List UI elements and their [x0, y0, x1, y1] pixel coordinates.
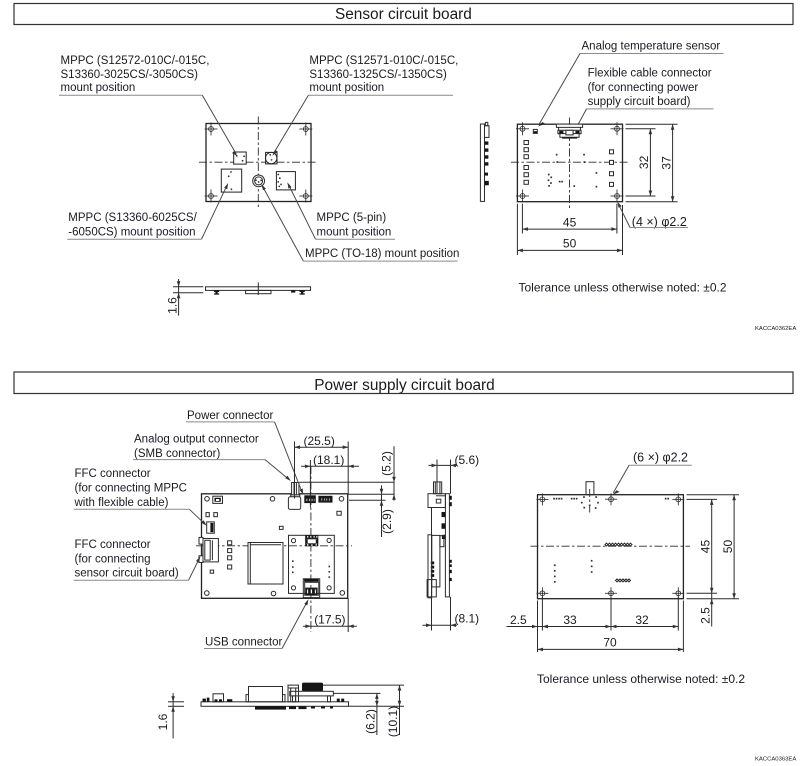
- svg-text:32: 32: [635, 613, 649, 627]
- svg-text:FFC connector: FFC connector: [75, 539, 151, 551]
- svg-text:Flexible cable connector: Flexible cable connector: [588, 68, 712, 80]
- svg-text:Power supply circuit board: Power supply circuit board: [314, 377, 495, 394]
- svg-text:(2.9): (2.9): [380, 509, 394, 534]
- svg-text:MPPC (5-pin): MPPC (5-pin): [317, 212, 387, 224]
- svg-text:-6050CS) mount position: -6050CS) mount position: [68, 226, 195, 238]
- svg-text:(6.2): (6.2): [364, 709, 378, 734]
- svg-text:50: 50: [721, 540, 735, 554]
- svg-text:(SMB connector): (SMB connector): [134, 448, 220, 460]
- svg-text:(4 ×) φ2.2: (4 ×) φ2.2: [632, 215, 687, 229]
- svg-text:S13360-3025CS/-3050CS): S13360-3025CS/-3050CS): [61, 69, 199, 81]
- svg-text:MPPC (S12572-010C/-015C,: MPPC (S12572-010C/-015C,: [61, 55, 210, 67]
- svg-text:Tolerance unless otherwise not: Tolerance unless otherwise noted: ±0.2: [537, 672, 745, 686]
- svg-text:Analog temperature sensor: Analog temperature sensor: [582, 41, 721, 53]
- svg-text:1.6: 1.6: [156, 713, 170, 730]
- svg-text:70: 70: [603, 636, 617, 650]
- svg-text:(8.1): (8.1): [455, 611, 480, 625]
- svg-text:mount position: mount position: [309, 82, 384, 94]
- svg-text:37: 37: [660, 156, 674, 170]
- svg-text:Analog output connector: Analog output connector: [134, 434, 259, 446]
- svg-text:Power connector: Power connector: [187, 410, 273, 422]
- svg-text:2.5: 2.5: [510, 613, 527, 627]
- svg-text:Sensor circuit board: Sensor circuit board: [335, 6, 472, 23]
- svg-text:33: 33: [563, 613, 577, 627]
- svg-text:KACCA0362EA: KACCA0362EA: [755, 326, 796, 332]
- svg-text:1.6: 1.6: [165, 297, 179, 314]
- svg-text:S13360-1325CS/-1350CS): S13360-1325CS/-1350CS): [309, 69, 447, 81]
- svg-text:45: 45: [698, 540, 712, 554]
- svg-text:(6 ×) φ2.2: (6 ×) φ2.2: [633, 451, 688, 465]
- svg-text:(18.1): (18.1): [313, 453, 344, 467]
- svg-text:Tolerance unless otherwise not: Tolerance unless otherwise noted: ±0.2: [519, 281, 727, 295]
- svg-text:mount position: mount position: [61, 82, 136, 94]
- svg-text:(for connecting MPPC: (for connecting MPPC: [75, 483, 188, 495]
- svg-text:MPPC (S13360-6025CS/: MPPC (S13360-6025CS/: [68, 212, 197, 224]
- svg-text:USB connector: USB connector: [205, 637, 283, 649]
- svg-text:(25.5): (25.5): [304, 434, 335, 448]
- svg-text:(for connecting: (for connecting: [75, 553, 151, 565]
- svg-text:KACCA0363EA: KACCA0363EA: [755, 757, 796, 763]
- svg-text:(for connecting power: (for connecting power: [588, 82, 699, 94]
- svg-text:(5.2): (5.2): [379, 451, 393, 476]
- svg-text:MPPC (TO-18) mount position: MPPC (TO-18) mount position: [305, 248, 459, 260]
- svg-text:with flexible cable): with flexible cable): [74, 497, 169, 509]
- svg-text:45: 45: [563, 215, 577, 229]
- svg-text:mount position: mount position: [317, 226, 392, 238]
- svg-text:50: 50: [563, 237, 577, 251]
- svg-text:(17.5): (17.5): [314, 613, 345, 627]
- svg-text:(10.1): (10.1): [386, 706, 400, 737]
- svg-text:2.5: 2.5: [698, 607, 712, 624]
- svg-text:(5.6): (5.6): [455, 453, 480, 467]
- svg-text:32: 32: [637, 155, 651, 169]
- svg-text:sensor circuit board): sensor circuit board): [75, 568, 179, 580]
- svg-text:FFC connector: FFC connector: [75, 468, 151, 480]
- svg-text:supply circuit board): supply circuit board): [588, 96, 691, 108]
- svg-text:MPPC (S12571-010C/-015C,: MPPC (S12571-010C/-015C,: [309, 55, 458, 67]
